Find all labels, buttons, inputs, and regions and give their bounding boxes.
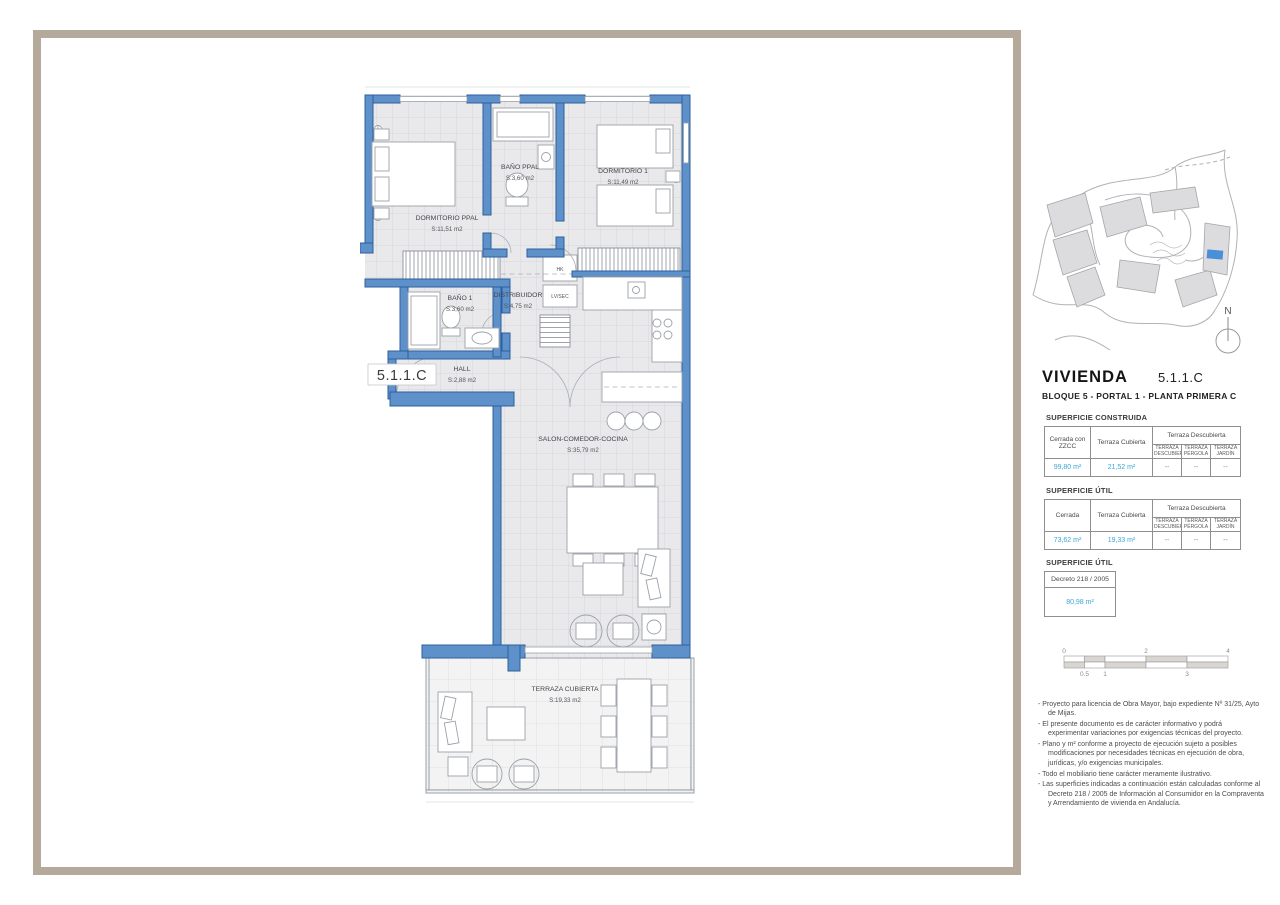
note-item: - Todo el mobiliario tiene carácter mera…	[1038, 770, 1264, 779]
superficie-util-decreto-heading: SUPERFICIE ÚTIL	[1046, 558, 1144, 567]
notes-block: - Proyecto para licencia de Obra Mayor, …	[1038, 700, 1264, 810]
scale-label-0: 0	[1062, 648, 1066, 655]
room-area-dormitorio-ppal: S:11,51 m2	[431, 226, 463, 233]
room-area-bano-ppal: S:3,60 m2	[506, 175, 535, 182]
room-area-bano-1: S:3,60 m2	[446, 306, 475, 313]
decreto-header: Decreto 218 / 2005	[1045, 572, 1116, 588]
note-item: - Proyecto para licencia de Obra Mayor, …	[1038, 700, 1264, 719]
room-label-bano-ppal: BAÑO PPAL	[501, 162, 539, 171]
site-map-buildings	[1047, 187, 1230, 307]
construida-cubierta-value: 21,52 m²	[1091, 459, 1153, 477]
room-label-dormitorio-ppal: DORMITORIO PPAL	[416, 215, 479, 222]
dormitorio-ppal-furniture	[372, 129, 455, 219]
construida-dash-2: --	[1182, 459, 1211, 477]
util-subcol-terraza-descubierta: TERRAZA DESCUBIERTA	[1153, 518, 1182, 532]
col-terraza-descubierta: Terraza Descubierta	[1153, 427, 1241, 445]
col-terraza-cubierta: Terraza Cubierta	[1091, 427, 1153, 459]
scale-label-1: 1	[1103, 671, 1107, 678]
room-label-salon: SALON-COMEDOR-COCINA	[538, 436, 628, 443]
room-label-distribuidor: DISTRIBUIDOR	[494, 292, 543, 299]
util-col-terraza-cubierta: Terraza Cubierta	[1091, 500, 1153, 532]
room-label-terraza: TERRAZA CUBIERTA	[532, 686, 599, 693]
util-dash-2: --	[1182, 532, 1211, 550]
superficie-util-block: SUPERFICIE ÚTIL Cerrada Terraza Cubierta…	[1044, 486, 1244, 550]
superficie-util-heading: SUPERFICIE ÚTIL	[1046, 486, 1244, 495]
scale-label-2: 2	[1144, 648, 1148, 655]
util-subcol-terraza-jardin: TERRAZA JARDÍN	[1211, 518, 1241, 532]
superficie-construida-block: SUPERFICIE CONSTRUIDA Cerrada con ZZCC T…	[1044, 413, 1244, 477]
util-col-terraza-descubierta: Terraza Descubierta	[1153, 500, 1241, 518]
unit-label-text: 5.1.1.C	[377, 368, 427, 384]
construida-dash-3: --	[1211, 459, 1241, 477]
superficie-util-decreto-table: Decreto 218 / 2005 80,98 m²	[1044, 571, 1116, 617]
note-item: - Las superficies indicadas a continuaci…	[1038, 780, 1264, 808]
vivienda-unit: 5.1.1.C	[1158, 370, 1203, 385]
room-label-bano-1: BAÑO 1	[448, 293, 473, 302]
plan-sheet: { "plan": { "unit_label": "5.1.1.C", "ro…	[0, 0, 1280, 905]
util-subcol-terraza-pergola: TERRAZA PÉRGOLA	[1182, 518, 1211, 532]
col-cerrada-zzcc: Cerrada con ZZCC	[1045, 427, 1091, 459]
scale-label-05: 0.5	[1080, 671, 1089, 678]
room-area-dormitorio-1: S:11,49 m2	[607, 179, 639, 186]
room-area-hall: S:2,88 m2	[448, 377, 477, 384]
subcol-terraza-descubierta: TERRAZA DESCUBIERTA	[1153, 445, 1182, 459]
superficie-construida-table: Cerrada con ZZCC Terraza Cubierta Terraz…	[1044, 426, 1241, 477]
unit-label-plan: 5.1.1.C	[368, 364, 436, 385]
scale-bar: 0 2 4 0.5 1 3	[1056, 642, 1236, 682]
construida-dash-1: --	[1153, 459, 1182, 477]
north-arrow: N	[1203, 300, 1253, 358]
vivienda-title: VIVIENDA	[1042, 368, 1128, 387]
room-area-terraza: S:19,33 m2	[549, 697, 581, 704]
site-map-unit-highlight	[1207, 249, 1224, 259]
util-cubierta-value: 19,33 m²	[1091, 532, 1153, 550]
subcol-terraza-pergola: TERRAZA PÉRGOLA	[1182, 445, 1211, 459]
title-block: VIVIENDA 5.1.1.C BLOQUE 5 - PORTAL 1 - P…	[1042, 368, 1247, 401]
room-area-salon: S:35,79 m2	[567, 447, 599, 454]
note-item: - El presente documento es de carácter i…	[1038, 720, 1264, 739]
scale-label-4: 4	[1226, 648, 1230, 655]
util-cerrada-value: 73,62 m²	[1045, 532, 1091, 550]
util-col-cerrada: Cerrada	[1045, 500, 1091, 532]
closet-lvsec-label: LV/SEC	[551, 294, 569, 300]
floor-plan: HK LV/SEC	[360, 85, 700, 810]
utility-closets: HK LV/SEC	[543, 255, 577, 307]
scale-label-3: 3	[1185, 671, 1189, 678]
room-label-hall: HALL	[453, 366, 470, 373]
closet-hk-label: HK	[557, 267, 565, 273]
room-label-dormitorio-1: DORMITORIO 1	[598, 168, 648, 175]
util-dash-3: --	[1211, 532, 1241, 550]
north-label: N	[1224, 306, 1231, 317]
util-dash-1: --	[1153, 532, 1182, 550]
subcol-terraza-jardin: TERRAZA JARDÍN	[1211, 445, 1241, 459]
note-item: - Plano y m² conforme a proyecto de ejec…	[1038, 740, 1264, 768]
construida-cerrada-value: 99,80 m²	[1045, 459, 1091, 477]
superficie-util-table: Cerrada Terraza Cubierta Terraza Descubi…	[1044, 499, 1241, 550]
superficie-util-decreto-block: SUPERFICIE ÚTIL Decreto 218 / 2005 80,98…	[1044, 558, 1144, 617]
room-area-distribuidor: S:4,75 m2	[504, 303, 533, 310]
vivienda-subtitle: BLOQUE 5 - PORTAL 1 - PLANTA PRIMERA C	[1042, 391, 1247, 401]
superficie-construida-heading: SUPERFICIE CONSTRUIDA	[1046, 413, 1244, 422]
decreto-value: 80,98 m²	[1045, 588, 1116, 617]
